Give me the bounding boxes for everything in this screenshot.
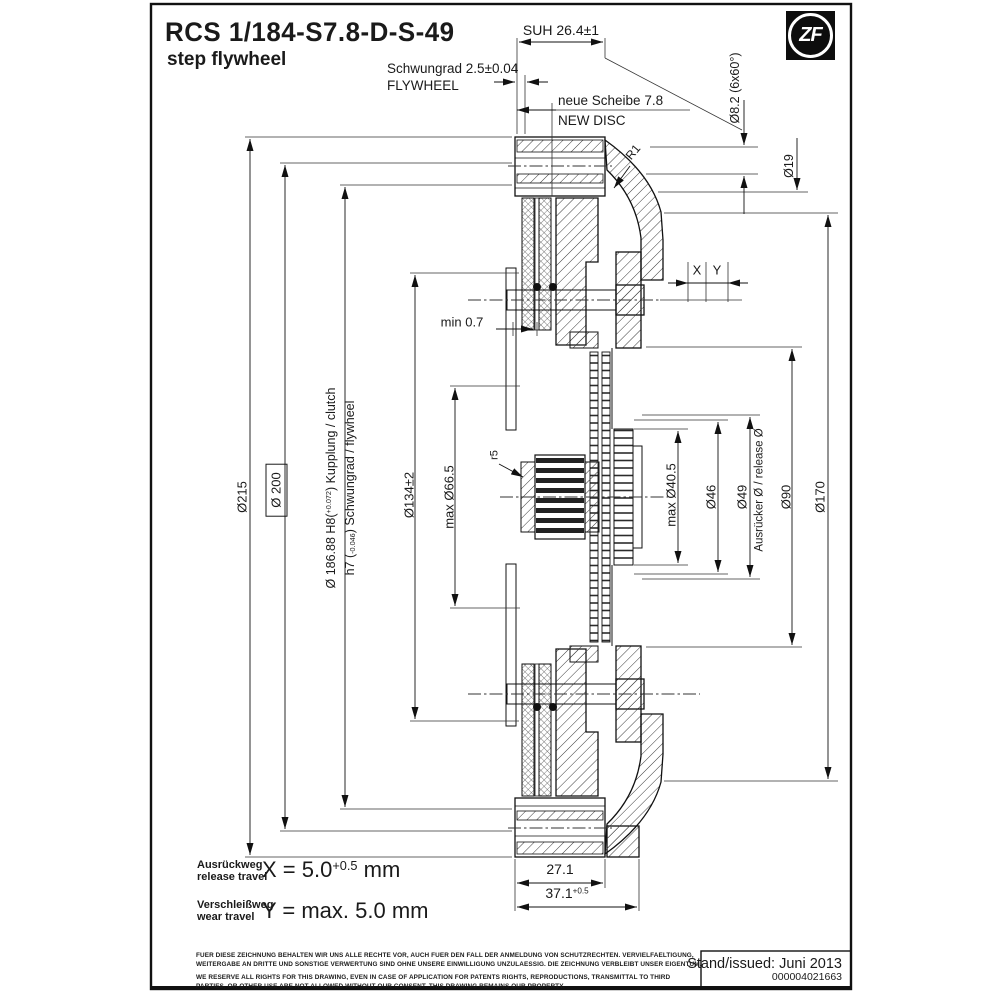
dim-d186-prefix: Ø 186.88 H8( [324,513,338,588]
dim-y-mark: Y [713,264,722,277]
dim-release-diameter: Ausrücker Ø / release Ø [754,428,766,551]
dim-d200-value: Ø 200 [266,463,288,516]
release-travel-eq: X = 5.0 [262,857,332,882]
dim-d186: Ø 186.88 H8(+0.072) Kupplung / clutch [325,388,338,589]
disclaimer-de-line1: FUER DIESE ZEICHNUNG BEHALTEN WIR UNS AL… [196,951,702,960]
dim-d215: Ø215 [236,481,249,513]
dim-new-disc: neue Scheibe 7.8 NEW DISC [558,93,663,130]
drawing-subtitle: step flywheel [167,48,286,72]
dim-flywheel-thickness-de: Schwungrad 2.5±0.04 [387,61,518,78]
dim-hole-pattern: Ø8.2 (6x60°) [729,52,742,123]
dim-d46: Ø46 [705,485,718,510]
dim-d200: Ø 200 [270,463,283,516]
dim-d90: Ø90 [780,485,793,510]
disclaimer-en-line1: WE RESERVE ALL RIGHTS FOR THIS DRAWING, … [196,973,702,982]
dim-r5: r5 [490,450,501,460]
dim-h7-suffix: ) Schwungrad / flywheel [343,401,357,534]
dim-new-disc-en: NEW DISC [558,113,663,130]
dim-flywheel-thickness-en: FLYWHEEL [387,78,518,95]
release-travel-unit: mm [364,857,401,882]
dim-min07: min 0.7 [441,316,484,329]
dim-w271: 27.1 [546,862,573,876]
disclaimer-block: FUER DIESE ZEICHNUNG BEHALTEN WIR UNS AL… [196,951,702,991]
release-travel-en: release travel [197,871,267,883]
drawing-sheet: RCS 1/184-S7.8-D-S-49 step flywheel ZF S… [0,0,1000,1000]
drawing-title: RCS 1/184-S7.8-D-S-49 [165,16,455,50]
clutch-cross-section-drawing [0,0,1000,1000]
dim-d66: max Ø66.5 [443,465,456,529]
document-number: 000004021663 [772,971,842,984]
dim-d170: Ø170 [814,481,827,513]
zf-logo-text: ZF [799,24,821,47]
wear-travel-value: Y = max. 5.0 mm [262,897,428,925]
dim-d19: Ø19 [783,154,796,178]
dim-w371-tol: +0.5 [573,887,589,896]
disclaimer-en-line2: PARTIES, OR OTHER USE ARE NOT ALLOWED WI… [196,982,702,991]
dim-suh: SUH 26.4±1 [523,23,599,37]
dim-w371-value: 37.1 [545,885,572,901]
dim-h7: h7 (-0.046) Schwungrad / flywheel [344,401,357,576]
dim-d186-tol: +0.072 [324,491,333,513]
release-travel-de: Ausrückweg [197,859,267,871]
dim-d405: max Ø40.5 [665,463,678,527]
zf-logo: ZF [786,11,835,60]
release-travel-value: X = 5.0+0.5 mm [262,856,400,884]
dim-d186-suffix: ) Kupplung / clutch [324,388,338,492]
dim-flywheel-thickness: Schwungrad 2.5±0.04 FLYWHEEL [387,61,518,95]
dim-h7-prefix: h7 ( [343,554,357,576]
dim-h7-tol: -0.046 [348,533,357,554]
dim-x-mark: X [693,264,702,277]
dim-d134: Ø134±2 [403,472,416,518]
dim-new-disc-de: neue Scheibe 7.8 [558,93,663,110]
release-travel-tol: +0.5 [332,858,357,873]
zf-logo-ring: ZF [788,13,833,58]
disclaimer-de-line2: WEITERGABE AN DRITTE UND SONSTIGE VERWER… [196,960,702,969]
release-travel-label: Ausrückweg release travel [197,859,267,883]
dim-d49: Ø49 [736,485,749,510]
dim-w371: 37.1+0.5 [545,886,588,900]
